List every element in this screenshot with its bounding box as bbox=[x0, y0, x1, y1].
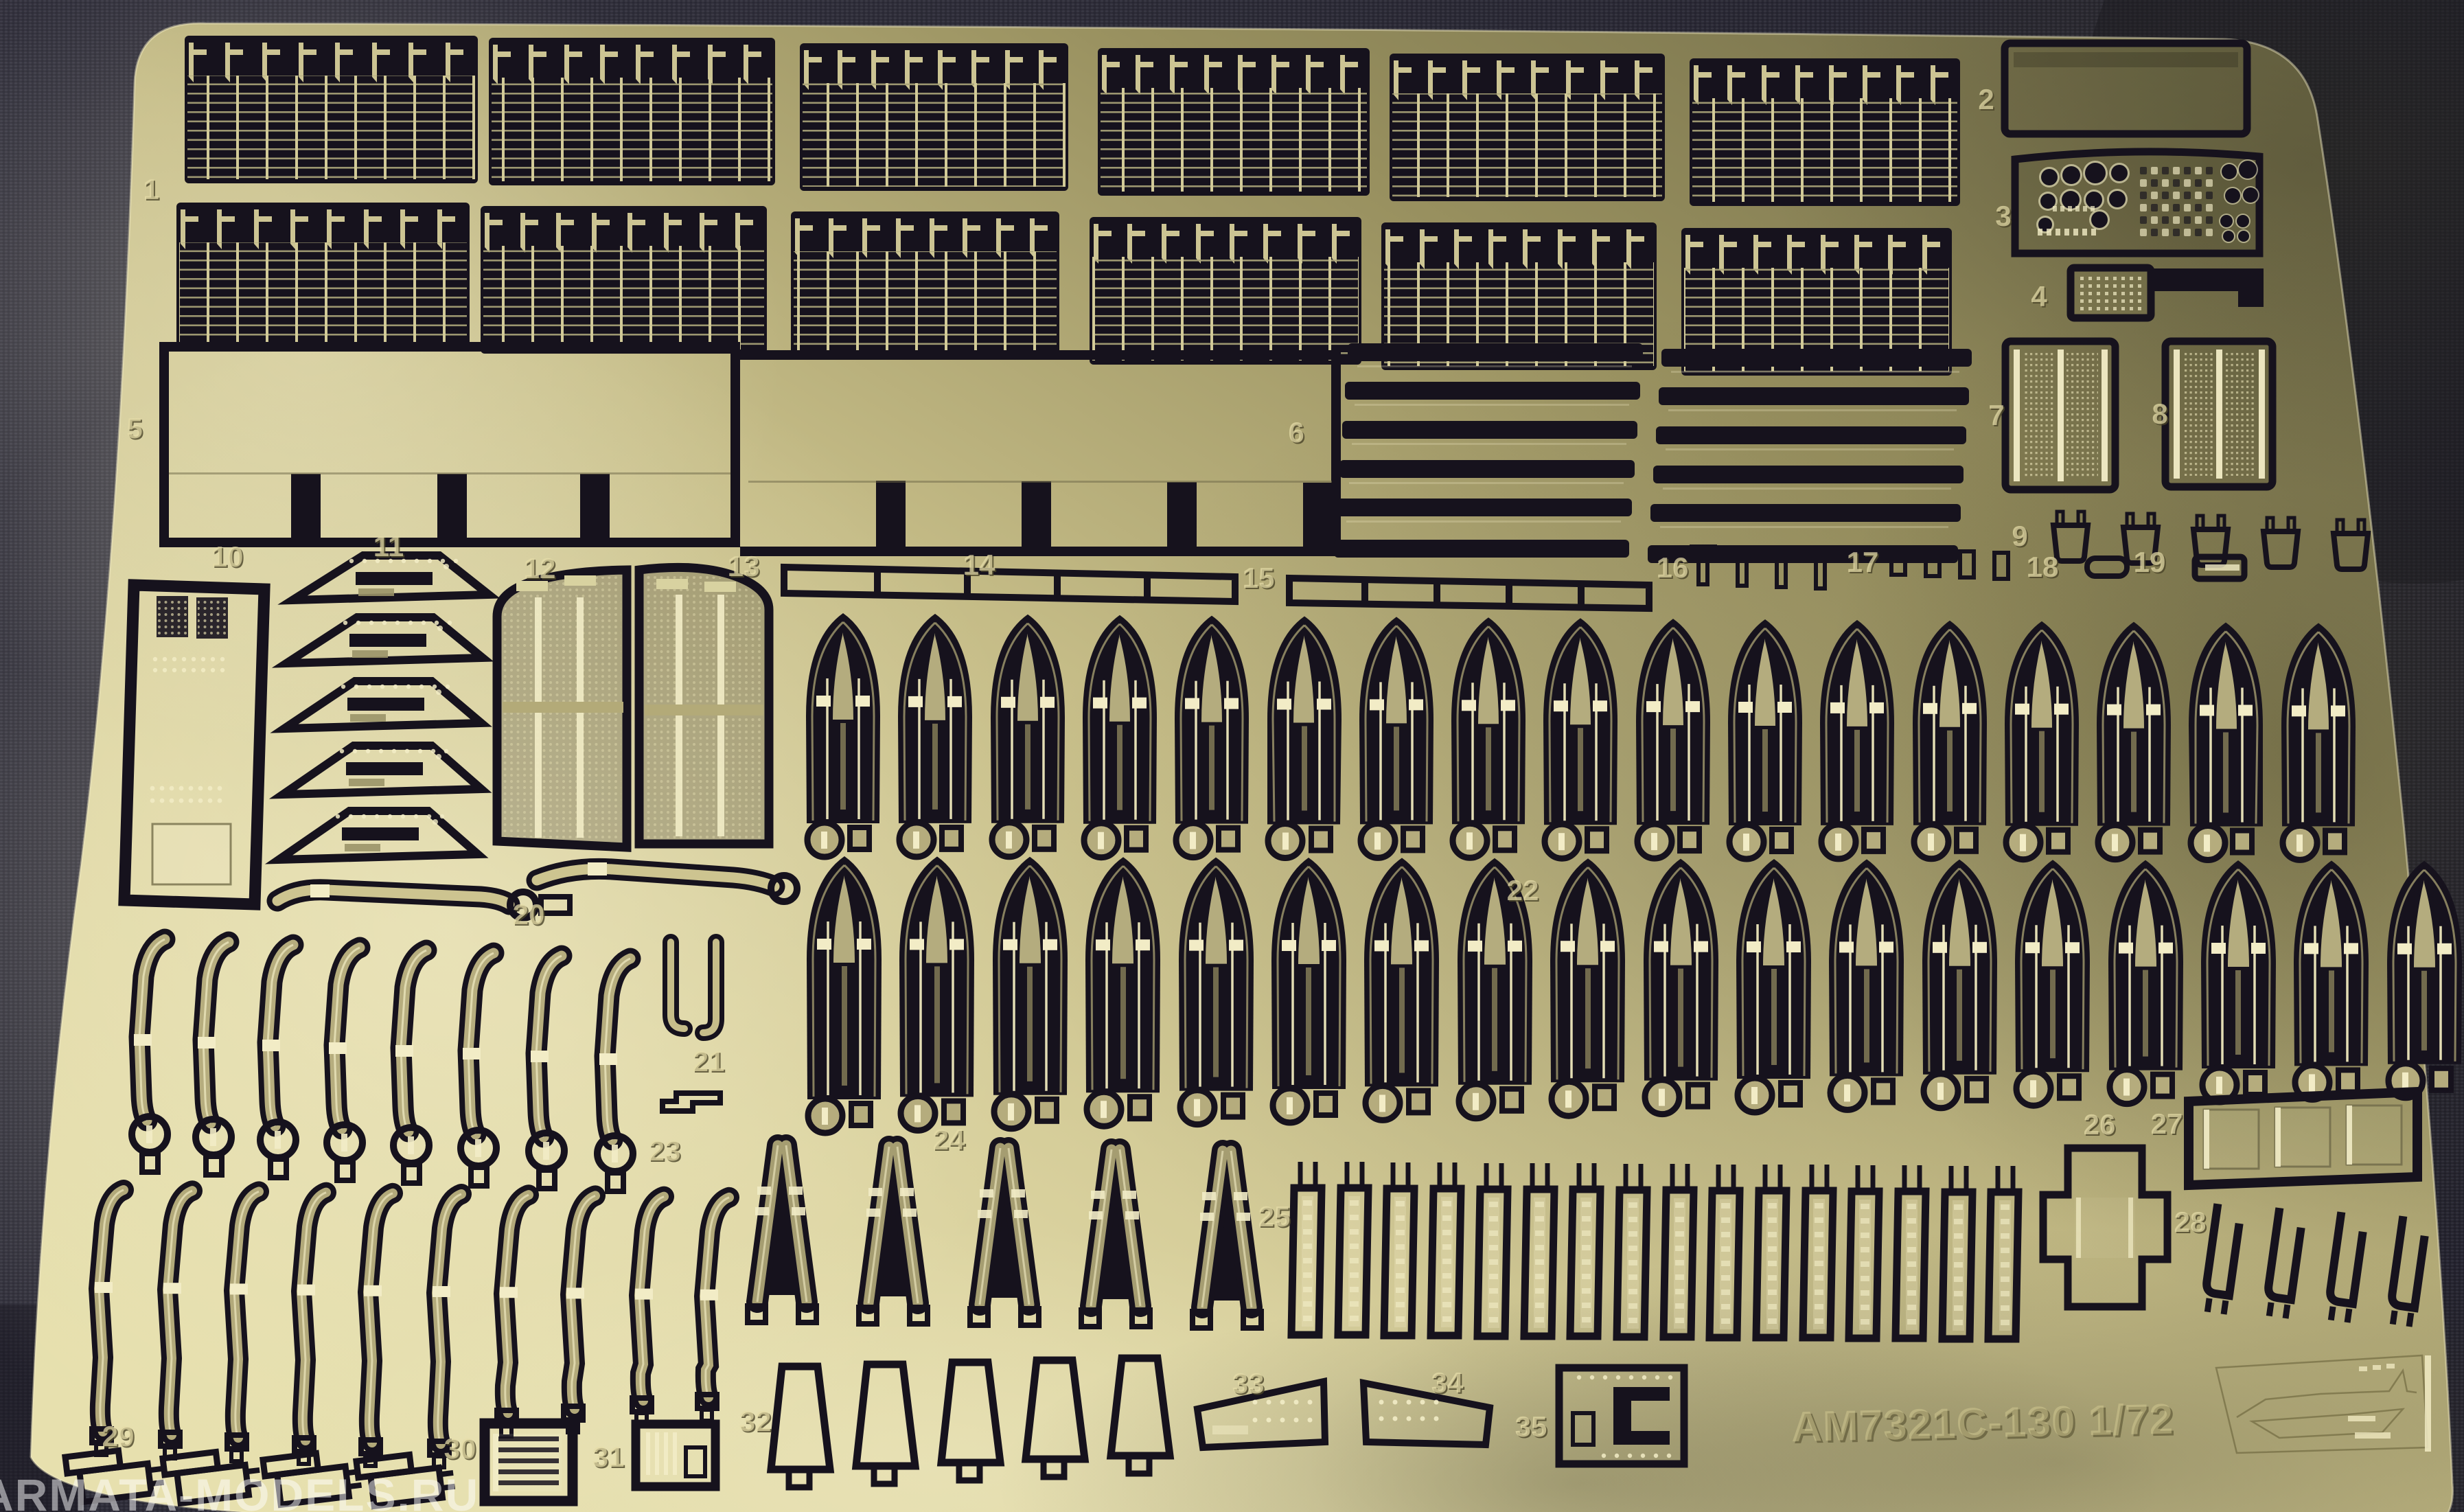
svg-text:19: 19 bbox=[2134, 546, 2166, 578]
svg-text:13: 13 bbox=[728, 550, 760, 582]
svg-text:8: 8 bbox=[2152, 398, 2167, 430]
svg-text:4: 4 bbox=[2031, 280, 2047, 312]
svg-text:3: 3 bbox=[1995, 200, 2011, 232]
svg-text:28: 28 bbox=[2174, 1206, 2207, 1238]
svg-text:32: 32 bbox=[739, 1405, 772, 1437]
svg-text:26: 26 bbox=[2084, 1108, 2116, 1141]
svg-text:12: 12 bbox=[524, 552, 556, 584]
svg-text:20: 20 bbox=[513, 898, 545, 930]
svg-text:1: 1 bbox=[143, 173, 159, 205]
svg-text:6: 6 bbox=[1288, 416, 1304, 448]
svg-text:24: 24 bbox=[933, 1123, 965, 1156]
svg-text:35: 35 bbox=[1515, 1410, 1547, 1443]
svg-text:25: 25 bbox=[1258, 1200, 1291, 1233]
svg-text:16: 16 bbox=[1657, 551, 1689, 584]
svg-text:10: 10 bbox=[211, 540, 244, 573]
svg-text:14: 14 bbox=[963, 549, 995, 581]
svg-text:17: 17 bbox=[1847, 546, 1879, 578]
svg-text:34: 34 bbox=[1431, 1366, 1464, 1399]
svg-text:5: 5 bbox=[126, 412, 142, 444]
svg-text:21: 21 bbox=[693, 1045, 725, 1077]
svg-text:2: 2 bbox=[1978, 83, 1994, 115]
svg-text:ARMATA-MODELS.RU: ARMATA-MODELS.RU bbox=[0, 1469, 479, 1512]
svg-text:11: 11 bbox=[373, 530, 404, 562]
svg-text:27: 27 bbox=[2151, 1108, 2183, 1140]
svg-text:29: 29 bbox=[102, 1420, 135, 1452]
svg-text:33: 33 bbox=[1232, 1367, 1265, 1399]
svg-text:15: 15 bbox=[1243, 562, 1275, 594]
svg-text:30: 30 bbox=[444, 1432, 476, 1465]
svg-text:31: 31 bbox=[592, 1441, 625, 1473]
svg-text:7: 7 bbox=[1988, 399, 2004, 431]
svg-text:22: 22 bbox=[1507, 874, 1539, 906]
svg-text:AM7321C-130 1/72: AM7321C-130 1/72 bbox=[1791, 1395, 2174, 1451]
svg-text:18: 18 bbox=[2027, 551, 2059, 583]
svg-text:23: 23 bbox=[649, 1134, 681, 1167]
svg-text:9: 9 bbox=[2012, 520, 2027, 552]
